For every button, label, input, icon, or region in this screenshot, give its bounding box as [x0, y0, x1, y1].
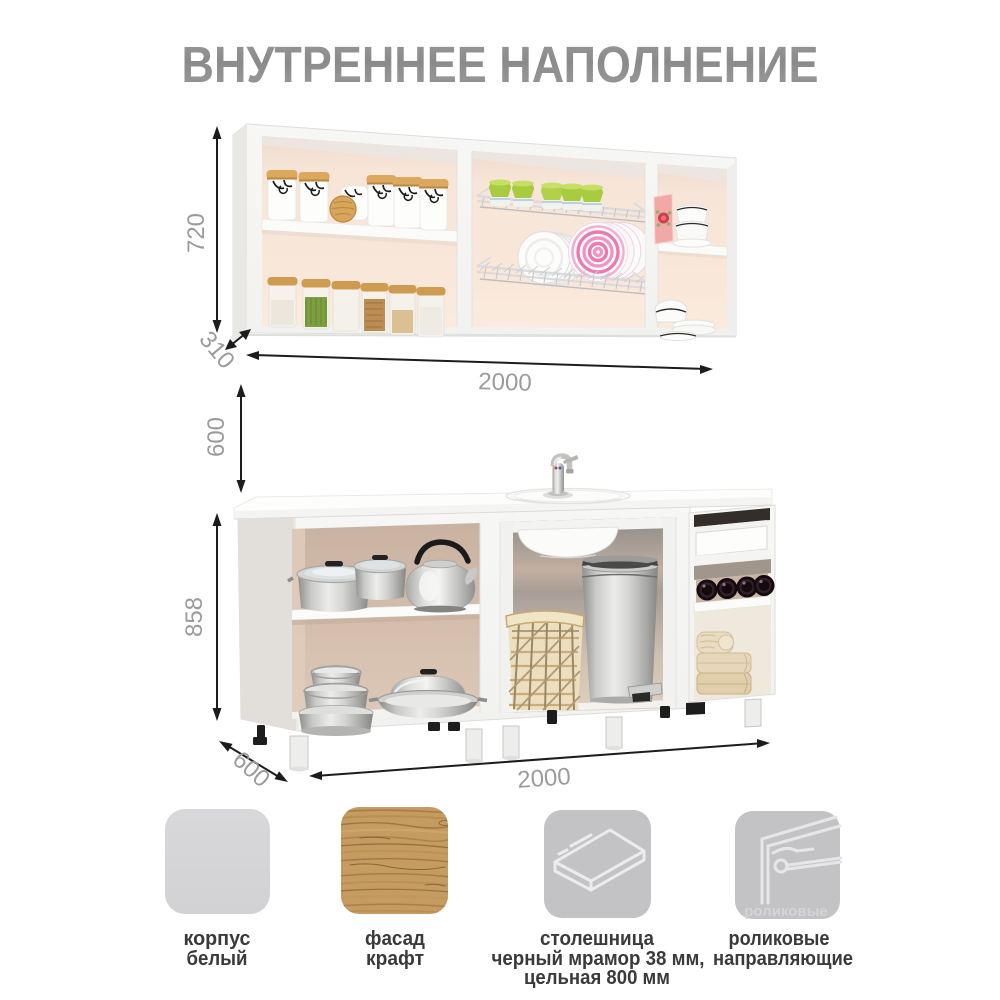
svg-text:ВНУТРЕННЕЕ НАПОЛНЕНИЕ: ВНУТРЕННЕЕ НАПОЛНЕНИЕ	[182, 36, 819, 93]
svg-text:белый: белый	[187, 948, 248, 970]
svg-text:720: 720	[183, 213, 210, 253]
svg-text:фасад: фасад	[365, 928, 425, 950]
svg-text:2000: 2000	[516, 763, 571, 794]
svg-text:столешница: столешница	[540, 928, 655, 950]
svg-text:цельная 800 мм: цельная 800 мм	[524, 967, 670, 989]
svg-text:роликовые: роликовые	[744, 903, 828, 920]
svg-text:направляющие: направляющие	[713, 948, 853, 970]
svg-text:600: 600	[227, 746, 275, 793]
svg-text:роликовые: роликовые	[729, 928, 830, 950]
svg-text:858: 858	[181, 597, 208, 637]
svg-text:600: 600	[203, 417, 230, 457]
svg-text:2000: 2000	[478, 368, 532, 397]
svg-text:крафт: крафт	[366, 948, 424, 970]
svg-text:корпус: корпус	[184, 928, 251, 950]
